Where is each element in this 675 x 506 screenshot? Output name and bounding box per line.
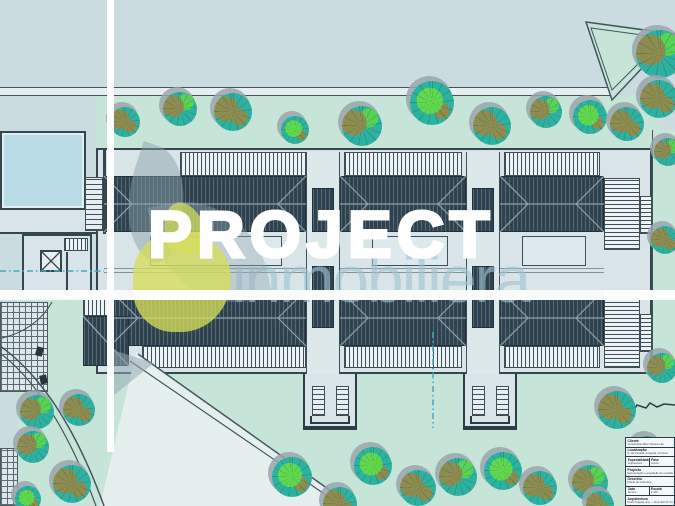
tree (63, 394, 95, 426)
title-block-row: EspecialidadeArquitecturaFaseLicenc. (626, 457, 674, 467)
tree (53, 465, 91, 503)
title-block-row: DesenhoPlanta de Cobertura (626, 477, 674, 487)
tree (342, 106, 382, 146)
watermark-title: PROJECT (148, 201, 495, 267)
tree (636, 30, 675, 78)
tree (281, 116, 309, 144)
tree (573, 100, 607, 134)
tree (20, 395, 54, 429)
crop-mark-vertical (107, 0, 114, 452)
tree (439, 458, 477, 496)
tree (523, 471, 557, 505)
site-plan-screenshot: ClienteConstruções Belo Oliveira LdaLoca… (0, 0, 675, 506)
tree (598, 391, 636, 429)
tree (272, 457, 312, 497)
tree (610, 107, 644, 141)
tree (473, 107, 511, 145)
tree (354, 447, 392, 485)
title-block: ClienteConstruções Belo Oliveira LdaLoca… (625, 437, 675, 506)
title-block-row: ArquitecturaPedro Sapata, Arq. — Rua Gói… (626, 496, 674, 505)
tree (163, 92, 197, 126)
tree (654, 138, 675, 166)
tree (110, 107, 140, 137)
crop-mark-horizontal (0, 290, 675, 300)
tree (484, 452, 522, 490)
tree (530, 96, 562, 128)
title-block-row: DataJaneiroEscala1:100 (626, 487, 674, 497)
tree (647, 353, 675, 383)
tree (15, 486, 41, 506)
tree (410, 81, 454, 125)
tree (17, 431, 49, 463)
tree (214, 93, 252, 131)
tree (586, 491, 614, 506)
tree (651, 226, 675, 254)
title-block-row: ClienteConstruções Belo Oliveira Lda (626, 438, 674, 448)
title-block-row: ProjectoRecuperação e ampliação de morad… (626, 467, 674, 477)
title-block-row: LocalizaçãoR. da Canada, Amiguda, Corroi… (626, 448, 674, 458)
tree (323, 487, 357, 506)
tree (400, 470, 436, 506)
tree (640, 80, 675, 118)
